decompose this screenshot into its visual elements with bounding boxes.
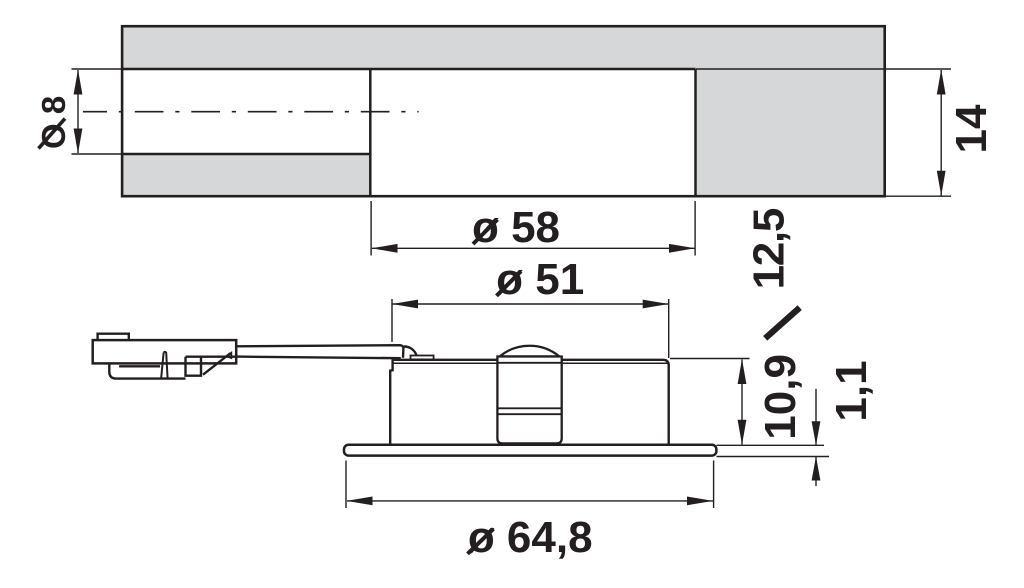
svg-text:14: 14 <box>947 104 996 153</box>
svg-text:1,1: 1,1 <box>827 360 876 421</box>
svg-text:ø 58: ø 58 <box>472 203 560 252</box>
svg-text:ø 51: ø 51 <box>496 255 584 304</box>
svg-text:10,9: 10,9 <box>756 354 805 440</box>
svg-text:12,5: 12,5 <box>745 208 794 289</box>
svg-text:O 8: O 8 <box>35 96 72 149</box>
